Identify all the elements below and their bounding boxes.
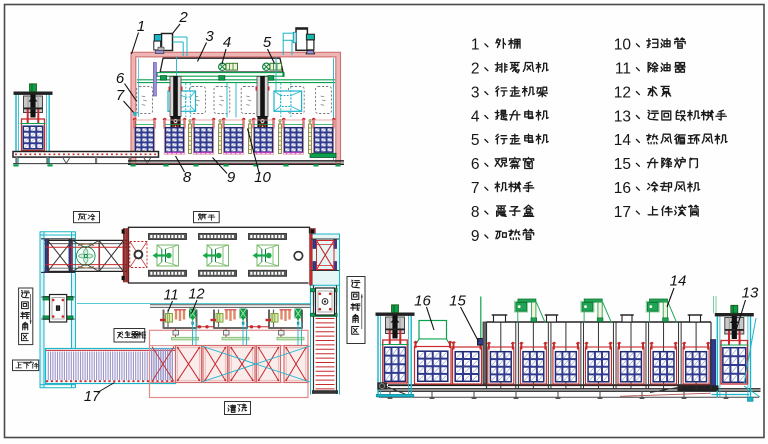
svg-text:13: 13 [742,285,759,302]
svg-text:2: 2 [178,9,188,26]
svg-text:15: 15 [614,156,631,173]
svg-text:10: 10 [254,169,271,186]
svg-text:15: 15 [449,293,466,310]
svg-text:11: 11 [615,61,631,78]
svg-text:13: 13 [614,108,631,125]
svg-text:12: 12 [614,84,631,101]
svg-text:11: 11 [163,288,178,304]
svg-text:5: 5 [263,34,272,51]
svg-text:9: 9 [471,228,480,245]
svg-text:5: 5 [471,132,480,149]
svg-text:16: 16 [614,180,631,197]
svg-text:14: 14 [614,132,632,149]
svg-text:3: 3 [471,84,480,101]
svg-text:4: 4 [471,108,480,125]
svg-text:6: 6 [471,156,480,173]
svg-text:17: 17 [614,204,631,221]
svg-text:9: 9 [227,169,236,186]
svg-text:14: 14 [670,273,687,290]
svg-text:16: 16 [414,293,431,310]
svg-text:7: 7 [471,180,480,197]
svg-text:1: 1 [471,37,480,54]
svg-text:8: 8 [471,204,480,221]
svg-text:2: 2 [471,61,480,78]
svg-text:4: 4 [223,34,231,51]
svg-text:6: 6 [116,70,125,87]
svg-text:10: 10 [614,37,632,54]
